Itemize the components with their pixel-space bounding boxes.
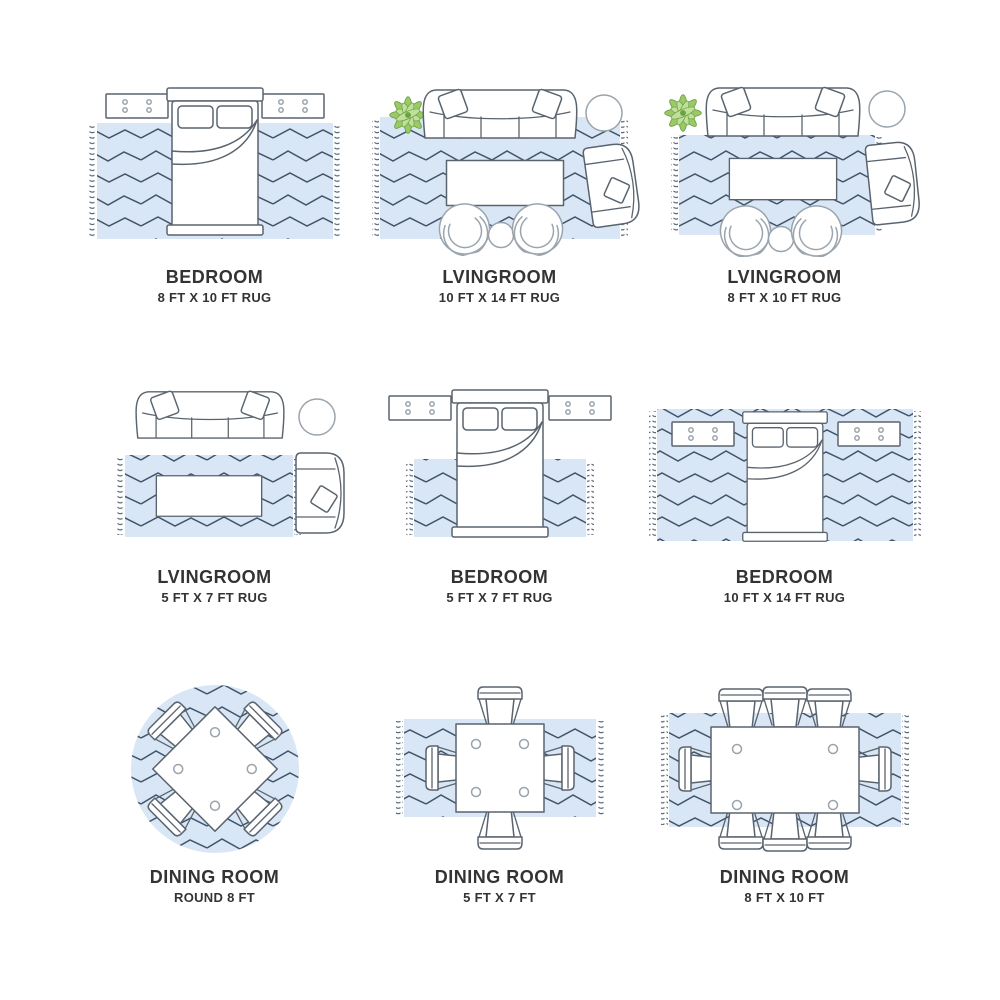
bed-icon — [742, 412, 826, 541]
cell-diningroom-5x7: DINING ROOM 5 FT X 7 FT — [357, 681, 642, 981]
room-title: BEDROOM — [724, 567, 845, 588]
room-title: DINING ROOM — [435, 867, 565, 888]
rug-fringe-right — [334, 125, 341, 237]
rug-fringe-right — [914, 411, 921, 539]
side-table-icon — [299, 399, 335, 435]
caption: DINING ROOM ROUND 8 FT — [150, 867, 280, 905]
cell-livingroom-8x10: LVINGROOM 8 FT X 10 FT RUG — [642, 81, 927, 381]
rug-fringe-left — [661, 715, 668, 825]
dining-table-icon — [456, 724, 544, 812]
rug-size-label: 5 FT X 7 FT — [435, 890, 565, 905]
cell-bedroom-8x10: BEDROOM 8 FT X 10 FT RUG — [72, 81, 357, 381]
dining-table-icon — [711, 727, 859, 813]
rug-fringe-right — [902, 715, 909, 825]
rug-fringe-left — [406, 461, 413, 535]
cell-livingroom-10x14: LVINGROOM 10 FT X 14 FT RUG — [357, 81, 642, 381]
nightstand-icon — [106, 94, 168, 118]
bedroom-5x7-illustration — [360, 381, 640, 557]
nightstand-icon — [549, 396, 611, 420]
diningroom-5x7-illustration — [360, 681, 640, 857]
rug-fringe-left — [372, 119, 379, 237]
bed-icon — [452, 390, 548, 537]
cell-livingroom-5x7: LVINGROOM 5 FT X 7 FT RUG — [72, 381, 357, 681]
nightstand-icon — [389, 396, 451, 420]
caption: DINING ROOM 8 FT X 10 FT — [720, 867, 850, 905]
diningroom-8x10-illustration — [645, 681, 925, 857]
cell-diningroom-round8: DINING ROOM ROUND 8 FT — [72, 681, 357, 981]
bedroom-8x10-illustration — [75, 81, 355, 257]
rug-size-label: 5 FT X 7 FT RUG — [446, 590, 552, 605]
rug-fringe-left — [117, 457, 124, 535]
rug-fringe-left — [396, 721, 403, 815]
caption: BEDROOM 10 FT X 14 FT RUG — [724, 567, 845, 605]
caption: DINING ROOM 5 FT X 7 FT — [435, 867, 565, 905]
room-title: BEDROOM — [446, 567, 552, 588]
cell-bedroom-5x7: BEDROOM 5 FT X 7 FT RUG — [357, 381, 642, 681]
rug-fringe-left — [89, 125, 96, 237]
caption: LVINGROOM 5 FT X 7 FT RUG — [157, 567, 271, 605]
room-title: LVINGROOM — [439, 267, 560, 288]
room-title: DINING ROOM — [720, 867, 850, 888]
room-title: BEDROOM — [158, 267, 272, 288]
cell-diningroom-8x10: DINING ROOM 8 FT X 10 FT — [642, 681, 927, 981]
ottoman-icon — [488, 223, 513, 248]
armchair-icon — [582, 142, 639, 228]
bedroom-10x14-illustration — [645, 381, 925, 557]
livingroom-8x10-illustration — [645, 81, 925, 257]
sofa-icon — [423, 89, 577, 138]
nightstand-icon — [262, 94, 324, 118]
bed-icon — [167, 88, 263, 235]
armchair-icon — [864, 141, 920, 226]
rug-size-label: ROUND 8 FT — [150, 890, 280, 905]
room-title: LVINGROOM — [157, 567, 271, 588]
side-table-icon — [586, 95, 622, 131]
caption: BEDROOM 5 FT X 7 FT RUG — [446, 567, 552, 605]
rug-size-label: 8 FT X 10 FT RUG — [158, 290, 272, 305]
room-title: LVINGROOM — [727, 267, 841, 288]
sofa-icon — [136, 390, 284, 438]
rug-fringe-left — [649, 411, 656, 539]
plant-icon — [664, 95, 701, 132]
caption: BEDROOM 8 FT X 10 FT RUG — [158, 267, 272, 305]
caption: LVINGROOM 8 FT X 10 FT RUG — [727, 267, 841, 305]
rug-fringe-left — [671, 137, 678, 233]
nightstand-icon — [672, 422, 734, 446]
livingroom-10x14-illustration — [360, 81, 640, 257]
rug-size-guide-page: { "colors": { "background": "#ffffff", "… — [0, 0, 1000, 1000]
rug-size-label: 10 FT X 14 FT RUG — [724, 590, 845, 605]
nightstand-icon — [838, 422, 900, 446]
room-title: DINING ROOM — [150, 867, 280, 888]
livingroom-5x7-illustration — [75, 381, 355, 557]
rug-size-label: 8 FT X 10 FT RUG — [727, 290, 841, 305]
rug-size-label: 10 FT X 14 FT RUG — [439, 290, 560, 305]
coffee-table-icon — [729, 158, 836, 199]
rug-size-label: 8 FT X 10 FT — [720, 890, 850, 905]
diningroom-round-illustration — [75, 681, 355, 857]
caption: LVINGROOM 10 FT X 14 FT RUG — [439, 267, 560, 305]
plant-icon — [389, 97, 426, 134]
rug-fringe-right — [597, 721, 604, 815]
rug-guide-grid: BEDROOM 8 FT X 10 FT RUG — [72, 81, 928, 981]
coffee-table-icon — [156, 476, 261, 517]
coffee-table-icon — [446, 161, 563, 206]
side-table-icon — [869, 91, 905, 127]
rug-fringe-right — [587, 461, 594, 535]
armchair-icon — [296, 453, 344, 533]
sofa-icon — [706, 87, 860, 136]
cell-bedroom-10x14: BEDROOM 10 FT X 14 FT RUG — [642, 381, 927, 681]
rug-size-label: 5 FT X 7 FT RUG — [157, 590, 271, 605]
ottoman-icon — [768, 227, 793, 252]
